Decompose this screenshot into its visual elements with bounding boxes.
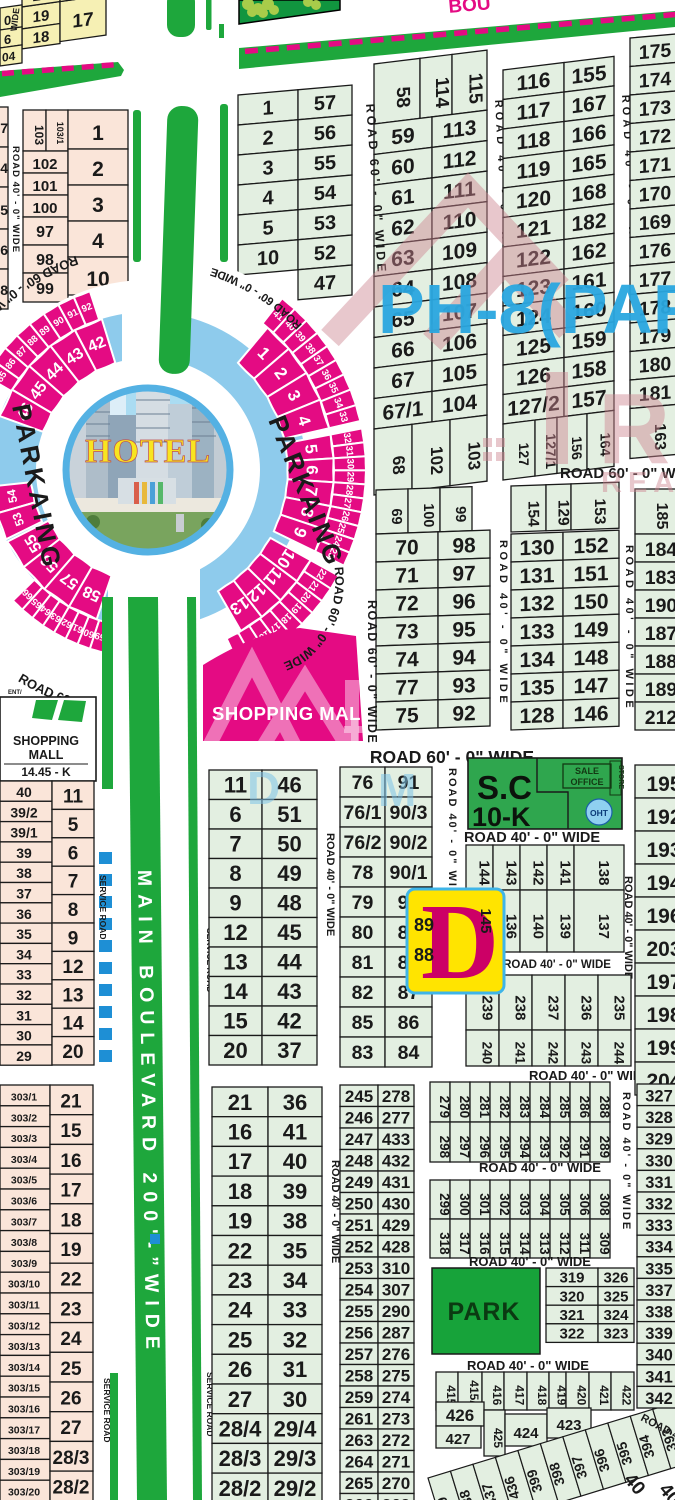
- svg-text:ROAD 40' - 0" WIDE: ROAD 40' - 0" WIDE: [329, 1160, 341, 1263]
- svg-text:140: 140: [530, 914, 547, 939]
- svg-text:276: 276: [382, 1345, 410, 1364]
- svg-text:270: 270: [382, 1474, 410, 1493]
- svg-text:10-K: 10-K: [472, 802, 531, 832]
- svg-text:88: 88: [414, 945, 434, 965]
- svg-text:68: 68: [389, 455, 408, 476]
- svg-text:236: 236: [578, 995, 595, 1020]
- svg-text:77: 77: [395, 676, 418, 700]
- svg-text:76/1: 76/1: [344, 802, 382, 824]
- svg-text:ROAD 40' - 0" WIDE: ROAD 40' - 0" WIDE: [324, 833, 336, 936]
- svg-text:8: 8: [229, 861, 241, 886]
- svg-text:150: 150: [573, 590, 608, 614]
- svg-text:173: 173: [639, 96, 672, 121]
- svg-text:78: 78: [352, 862, 374, 884]
- svg-text:12: 12: [223, 920, 247, 945]
- svg-text:303/11: 303/11: [8, 1300, 40, 1312]
- svg-text:303/7: 303/7: [11, 1216, 37, 1228]
- svg-text:81: 81: [352, 952, 374, 974]
- svg-text:39: 39: [283, 1179, 307, 1204]
- svg-text:303/16: 303/16: [8, 1404, 40, 1416]
- svg-text:72: 72: [395, 592, 418, 616]
- svg-text:ROAD 40' - 0" WIDE: ROAD 40' - 0" WIDE: [497, 540, 509, 706]
- svg-text:1: 1: [92, 122, 104, 145]
- svg-text:112: 112: [443, 147, 477, 174]
- svg-text:255: 255: [345, 1302, 373, 1321]
- svg-text:5: 5: [0, 202, 8, 218]
- svg-text:303/15: 303/15: [8, 1383, 40, 1395]
- svg-text:420: 420: [575, 1385, 589, 1405]
- svg-text:259: 259: [345, 1388, 373, 1407]
- svg-text:PARK: PARK: [448, 1298, 521, 1326]
- svg-text:324: 324: [603, 1307, 629, 1324]
- svg-text:116: 116: [517, 69, 551, 96]
- svg-text:433: 433: [382, 1130, 410, 1149]
- svg-text:240: 240: [480, 1042, 495, 1065]
- svg-text:4: 4: [92, 230, 104, 253]
- svg-text:70: 70: [395, 536, 418, 560]
- svg-text:19: 19: [33, 7, 50, 26]
- svg-text:199: 199: [646, 1037, 675, 1060]
- svg-text:ROAD 40' - 0" WIDE: ROAD 40' - 0" WIDE: [503, 959, 611, 971]
- svg-text:139: 139: [557, 914, 574, 939]
- svg-text:340: 340: [645, 1347, 673, 1365]
- svg-text:118: 118: [517, 128, 551, 155]
- svg-text:114: 114: [431, 76, 452, 110]
- svg-text:175: 175: [639, 39, 672, 64]
- svg-text:14.45 - K: 14.45 - K: [21, 765, 71, 779]
- svg-text:7: 7: [68, 872, 79, 893]
- svg-text:28/3: 28/3: [219, 1446, 262, 1471]
- svg-text:34: 34: [283, 1268, 308, 1293]
- svg-text:253: 253: [345, 1259, 373, 1278]
- svg-text:149: 149: [573, 618, 608, 642]
- svg-text:249: 249: [345, 1173, 373, 1192]
- svg-text:ROAD 60' - 0" WIDE: ROAD 60' - 0" WIDE: [365, 600, 379, 744]
- svg-text:252: 252: [345, 1237, 373, 1256]
- svg-text:92: 92: [452, 702, 475, 726]
- svg-text:147: 147: [573, 674, 608, 698]
- svg-text:23: 23: [228, 1268, 252, 1293]
- svg-text:26: 26: [228, 1357, 252, 1382]
- svg-text:166: 166: [571, 121, 606, 148]
- svg-text:22: 22: [228, 1238, 252, 1263]
- svg-text:102: 102: [427, 445, 446, 476]
- svg-text:S.C: S.C: [477, 769, 532, 806]
- svg-text:290: 290: [382, 1302, 410, 1321]
- svg-text:15: 15: [60, 1121, 82, 1142]
- svg-text:74: 74: [395, 648, 419, 672]
- svg-text:7: 7: [0, 120, 8, 136]
- svg-text:243: 243: [579, 1042, 594, 1065]
- svg-text:9: 9: [229, 891, 241, 916]
- svg-text:129: 129: [555, 500, 572, 527]
- svg-text:203: 203: [646, 938, 675, 961]
- svg-text:152: 152: [573, 534, 608, 558]
- svg-text:46: 46: [277, 773, 301, 798]
- svg-text:429: 429: [382, 1216, 410, 1235]
- svg-text:39: 39: [16, 845, 32, 861]
- svg-text:266: 266: [345, 1495, 373, 1500]
- svg-text:8: 8: [68, 900, 79, 921]
- svg-text:143: 143: [503, 860, 520, 885]
- svg-text:4: 4: [0, 160, 8, 176]
- svg-text:265: 265: [345, 1474, 373, 1493]
- svg-text:303/13: 303/13: [8, 1341, 40, 1353]
- svg-text:117: 117: [517, 98, 551, 125]
- svg-text:303/10: 303/10: [8, 1279, 40, 1291]
- svg-text:257: 257: [345, 1345, 373, 1364]
- svg-text:85: 85: [352, 1012, 374, 1034]
- svg-text:33: 33: [16, 967, 32, 983]
- svg-text:24: 24: [60, 1329, 82, 1350]
- svg-text:25: 25: [60, 1359, 82, 1380]
- svg-text:ROAD 40' - 0" WIDE: ROAD 40' - 0" WIDE: [479, 1160, 601, 1175]
- svg-text:SHOPPING: SHOPPING: [13, 734, 79, 748]
- svg-text:101: 101: [32, 178, 57, 195]
- svg-text:14: 14: [62, 1014, 84, 1035]
- svg-text:264: 264: [345, 1452, 374, 1471]
- svg-text:277: 277: [382, 1108, 410, 1127]
- svg-text:11: 11: [224, 773, 247, 798]
- svg-text:69: 69: [388, 508, 404, 525]
- svg-text:330: 330: [645, 1152, 673, 1170]
- svg-text:103: 103: [465, 441, 484, 472]
- svg-text:32: 32: [16, 987, 32, 1003]
- svg-text:132: 132: [519, 592, 554, 616]
- svg-text:60: 60: [391, 154, 414, 180]
- svg-text:SALE: SALE: [575, 766, 599, 776]
- svg-text:146: 146: [573, 702, 608, 726]
- svg-text:ROAD 40' - 0" WIDE: ROAD 40' - 0" WIDE: [469, 1254, 591, 1269]
- svg-text:303/4: 303/4: [11, 1154, 37, 1166]
- svg-text:212: 212: [645, 707, 675, 729]
- svg-text:154: 154: [525, 501, 542, 528]
- svg-text:37: 37: [277, 1038, 301, 1063]
- svg-text:ROAD 40' - 0" WIDE: ROAD 40' - 0" WIDE: [623, 545, 635, 711]
- svg-text:56: 56: [314, 122, 336, 146]
- svg-text:119: 119: [517, 157, 551, 184]
- svg-text:169: 169: [639, 210, 672, 235]
- svg-text:89: 89: [414, 915, 434, 935]
- svg-text:79: 79: [352, 892, 374, 914]
- svg-text:15: 15: [223, 1009, 247, 1034]
- svg-text:23: 23: [60, 1299, 81, 1320]
- svg-text:32: 32: [341, 432, 354, 444]
- svg-text:SERVICE ROAD: SERVICE ROAD: [102, 1378, 112, 1443]
- svg-text:73: 73: [395, 620, 418, 644]
- svg-text:17: 17: [72, 9, 93, 33]
- svg-text:2: 2: [262, 127, 273, 150]
- svg-text:242: 242: [546, 1042, 561, 1065]
- svg-text:51: 51: [277, 802, 301, 827]
- svg-text:ROAD 40' - 0" WIDE: ROAD 40' - 0" WIDE: [622, 876, 634, 979]
- svg-text:39/2: 39/2: [10, 804, 37, 820]
- svg-text:320: 320: [559, 1288, 584, 1305]
- svg-text:OFFICE: OFFICE: [571, 777, 604, 787]
- svg-text:D: D: [421, 883, 499, 1002]
- svg-text:50: 50: [277, 832, 301, 857]
- svg-text:57: 57: [314, 92, 336, 116]
- svg-text:421: 421: [597, 1385, 611, 1405]
- svg-text:16: 16: [228, 1119, 252, 1144]
- svg-text:303/12: 303/12: [8, 1320, 40, 1332]
- svg-text:27: 27: [228, 1387, 252, 1412]
- svg-text:424: 424: [513, 1425, 539, 1442]
- svg-text:30: 30: [344, 459, 355, 470]
- svg-text:303/18: 303/18: [8, 1445, 40, 1457]
- svg-text:97: 97: [452, 562, 475, 586]
- svg-text:38: 38: [16, 865, 32, 881]
- svg-text:95: 95: [452, 618, 476, 642]
- svg-text:1: 1: [262, 97, 273, 120]
- svg-text:82: 82: [352, 982, 374, 1004]
- svg-text:28: 28: [343, 484, 355, 496]
- svg-text:189: 189: [645, 679, 675, 701]
- svg-text:SERVICE ROAD: SERVICE ROAD: [98, 875, 108, 940]
- svg-text:38: 38: [283, 1209, 307, 1234]
- svg-text:28/2: 28/2: [53, 1478, 90, 1499]
- svg-text:103/1: 103/1: [55, 122, 65, 145]
- svg-text:31: 31: [343, 445, 355, 457]
- svg-text:303/19: 303/19: [8, 1466, 40, 1478]
- svg-text:42: 42: [277, 1009, 301, 1034]
- svg-text:04: 04: [2, 49, 16, 65]
- svg-text:176: 176: [639, 239, 672, 264]
- svg-text:171: 171: [639, 153, 672, 178]
- svg-text:319: 319: [559, 1270, 584, 1287]
- svg-text:337: 337: [645, 1282, 673, 1300]
- svg-text:431: 431: [382, 1173, 410, 1192]
- svg-text:275: 275: [382, 1366, 410, 1385]
- svg-text:308: 308: [597, 1193, 612, 1216]
- svg-text:235: 235: [611, 995, 628, 1020]
- svg-text:167: 167: [571, 91, 606, 118]
- svg-text:29/2: 29/2: [274, 1476, 317, 1500]
- svg-text:303/2: 303/2: [11, 1112, 37, 1124]
- svg-text:M: M: [378, 764, 416, 816]
- svg-text:102: 102: [32, 156, 57, 173]
- svg-text:303/5: 303/5: [11, 1175, 37, 1187]
- svg-text:309: 309: [597, 1232, 612, 1255]
- svg-text:432: 432: [382, 1151, 410, 1170]
- svg-text:245: 245: [345, 1087, 373, 1106]
- svg-text:27: 27: [60, 1418, 81, 1439]
- svg-text:30: 30: [16, 1028, 32, 1044]
- svg-text:131: 131: [519, 564, 554, 588]
- svg-text:ROAD 40' - 0" WIDE: ROAD 40' - 0" WIDE: [467, 1358, 589, 1373]
- svg-text:5: 5: [262, 217, 273, 240]
- svg-text:192: 192: [646, 806, 675, 829]
- svg-text:29/4: 29/4: [274, 1416, 318, 1441]
- svg-text:98: 98: [452, 534, 476, 558]
- svg-text:76/2: 76/2: [344, 832, 382, 854]
- svg-text:254: 254: [345, 1280, 374, 1299]
- svg-text:20: 20: [62, 1042, 83, 1063]
- svg-text:44: 44: [277, 950, 302, 975]
- svg-text:103: 103: [32, 125, 46, 145]
- svg-text:D: D: [247, 762, 280, 814]
- svg-text:155: 155: [571, 62, 606, 89]
- svg-text:425: 425: [491, 1428, 505, 1448]
- svg-text:327: 327: [645, 1088, 673, 1106]
- svg-text:19: 19: [60, 1240, 81, 1261]
- svg-text:196: 196: [646, 905, 675, 928]
- svg-text:11: 11: [63, 787, 84, 808]
- svg-text:127: 127: [516, 442, 532, 467]
- svg-text:417: 417: [513, 1385, 527, 1405]
- svg-text:28/4: 28/4: [219, 1416, 263, 1441]
- svg-text:47: 47: [314, 272, 336, 296]
- svg-text:40: 40: [16, 784, 32, 800]
- svg-text:174: 174: [639, 68, 672, 93]
- svg-text:ROAD 40' - 0" WIDE: ROAD 40' - 0" WIDE: [529, 1068, 651, 1083]
- svg-text:342: 342: [645, 1390, 673, 1408]
- svg-text:99: 99: [452, 506, 468, 523]
- svg-text:258: 258: [345, 1366, 373, 1385]
- svg-text:22: 22: [60, 1270, 81, 1291]
- svg-text:165: 165: [571, 150, 606, 177]
- svg-text:STORE: STORE: [617, 765, 624, 789]
- svg-text:237: 237: [545, 995, 562, 1020]
- svg-text:251: 251: [345, 1216, 373, 1235]
- svg-text:ROAD 40' - 0" WIDE: ROAD 40' - 0" WIDE: [464, 830, 600, 846]
- svg-text:184: 184: [645, 539, 675, 561]
- svg-text:29/3: 29/3: [274, 1446, 317, 1471]
- svg-text:MALL: MALL: [29, 748, 64, 762]
- svg-text:18: 18: [33, 28, 50, 47]
- svg-text:61: 61: [391, 185, 415, 211]
- svg-text:190: 190: [645, 595, 675, 617]
- svg-text:274: 274: [382, 1388, 411, 1407]
- svg-text:ROAD 40' - 0" WIDE: ROAD 40' - 0" WIDE: [620, 1092, 632, 1231]
- svg-text:9: 9: [68, 929, 79, 950]
- svg-text:120: 120: [516, 186, 551, 213]
- svg-text:6: 6: [68, 843, 79, 864]
- svg-text:272: 272: [382, 1431, 410, 1450]
- svg-text:168: 168: [571, 180, 606, 207]
- svg-text:4: 4: [262, 187, 274, 210]
- svg-text:49: 49: [277, 861, 301, 886]
- svg-text:241: 241: [513, 1042, 528, 1065]
- svg-text:29: 29: [344, 472, 355, 483]
- svg-text:288: 288: [597, 1096, 612, 1119]
- svg-text:303/9: 303/9: [11, 1258, 37, 1270]
- svg-text:34: 34: [16, 946, 32, 962]
- svg-text:28/2: 28/2: [219, 1476, 262, 1500]
- svg-text:104: 104: [442, 391, 477, 418]
- svg-text:418: 418: [535, 1385, 549, 1405]
- svg-text:12: 12: [62, 957, 83, 978]
- svg-text:3: 3: [92, 194, 104, 217]
- svg-text:133: 133: [519, 620, 554, 644]
- svg-text:310: 310: [382, 1259, 410, 1278]
- svg-text:427: 427: [445, 1431, 470, 1448]
- svg-text:250: 250: [345, 1194, 373, 1213]
- svg-text:5: 5: [68, 815, 79, 836]
- svg-text:333: 333: [645, 1217, 673, 1235]
- svg-text:195: 195: [646, 773, 675, 796]
- svg-text:331: 331: [645, 1174, 673, 1192]
- svg-text:19: 19: [228, 1209, 252, 1234]
- svg-text:246: 246: [345, 1108, 373, 1127]
- svg-text:303/20: 303/20: [8, 1487, 40, 1499]
- svg-text:6: 6: [229, 802, 241, 827]
- svg-text:76: 76: [352, 772, 374, 794]
- svg-text:187: 187: [645, 623, 675, 645]
- svg-text:193: 193: [646, 839, 675, 862]
- svg-text:28/3: 28/3: [53, 1448, 90, 1469]
- svg-text:198: 198: [646, 1004, 675, 1027]
- svg-text:31: 31: [16, 1007, 32, 1023]
- svg-text:35: 35: [16, 926, 32, 942]
- svg-text:430: 430: [382, 1194, 410, 1213]
- svg-text:422: 422: [620, 1385, 634, 1405]
- svg-text:86: 86: [398, 1012, 420, 1034]
- svg-text:43: 43: [277, 979, 301, 1004]
- svg-text:100: 100: [420, 503, 436, 528]
- svg-text:71: 71: [395, 564, 419, 588]
- svg-text:329: 329: [645, 1131, 673, 1149]
- svg-text:289: 289: [597, 1136, 612, 1159]
- svg-text:105: 105: [442, 360, 477, 387]
- svg-text:35: 35: [283, 1238, 307, 1263]
- svg-text:341: 341: [645, 1368, 673, 1386]
- svg-text:328: 328: [645, 1109, 673, 1127]
- svg-text:13: 13: [223, 950, 247, 975]
- svg-text:151: 151: [573, 562, 608, 586]
- svg-text:303/1: 303/1: [11, 1092, 37, 1104]
- svg-text:93: 93: [452, 674, 475, 698]
- svg-text:37: 37: [16, 886, 32, 902]
- svg-text:326: 326: [603, 1270, 628, 1287]
- svg-text:287: 287: [382, 1323, 410, 1342]
- svg-text:18: 18: [60, 1210, 81, 1231]
- svg-text:39/1: 39/1: [10, 825, 37, 841]
- svg-text:183: 183: [645, 567, 675, 589]
- svg-text:244: 244: [612, 1042, 627, 1065]
- svg-text:322: 322: [559, 1326, 584, 1343]
- svg-text:36: 36: [283, 1090, 307, 1115]
- svg-text:48: 48: [277, 891, 301, 916]
- svg-text:13: 13: [62, 985, 83, 1006]
- svg-text:126: 126: [516, 363, 551, 390]
- svg-text:130: 130: [519, 536, 554, 560]
- svg-text:14: 14: [223, 979, 248, 1004]
- svg-text:162: 162: [571, 239, 606, 266]
- svg-text:30: 30: [283, 1387, 307, 1412]
- svg-text:134: 134: [519, 648, 554, 672]
- svg-text:238: 238: [512, 995, 529, 1020]
- svg-text:ENT/: ENT/: [8, 690, 22, 696]
- svg-text:REA: REA: [601, 467, 675, 499]
- svg-text:303/17: 303/17: [8, 1424, 40, 1436]
- svg-text:6: 6: [0, 242, 8, 258]
- svg-text:52: 52: [314, 242, 336, 266]
- svg-text:53: 53: [314, 212, 336, 236]
- svg-text:24: 24: [228, 1298, 253, 1323]
- svg-text:33: 33: [283, 1298, 307, 1323]
- svg-text:100: 100: [32, 200, 57, 217]
- svg-text:21: 21: [60, 1092, 82, 1113]
- svg-text:54: 54: [314, 182, 337, 206]
- svg-text:156: 156: [569, 435, 585, 460]
- svg-text:148: 148: [573, 646, 608, 670]
- svg-text:OHT: OHT: [590, 808, 609, 818]
- svg-text:3: 3: [262, 157, 273, 180]
- svg-text:90/1: 90/1: [390, 862, 428, 884]
- svg-text:273: 273: [382, 1409, 410, 1428]
- svg-text:332: 332: [645, 1196, 673, 1214]
